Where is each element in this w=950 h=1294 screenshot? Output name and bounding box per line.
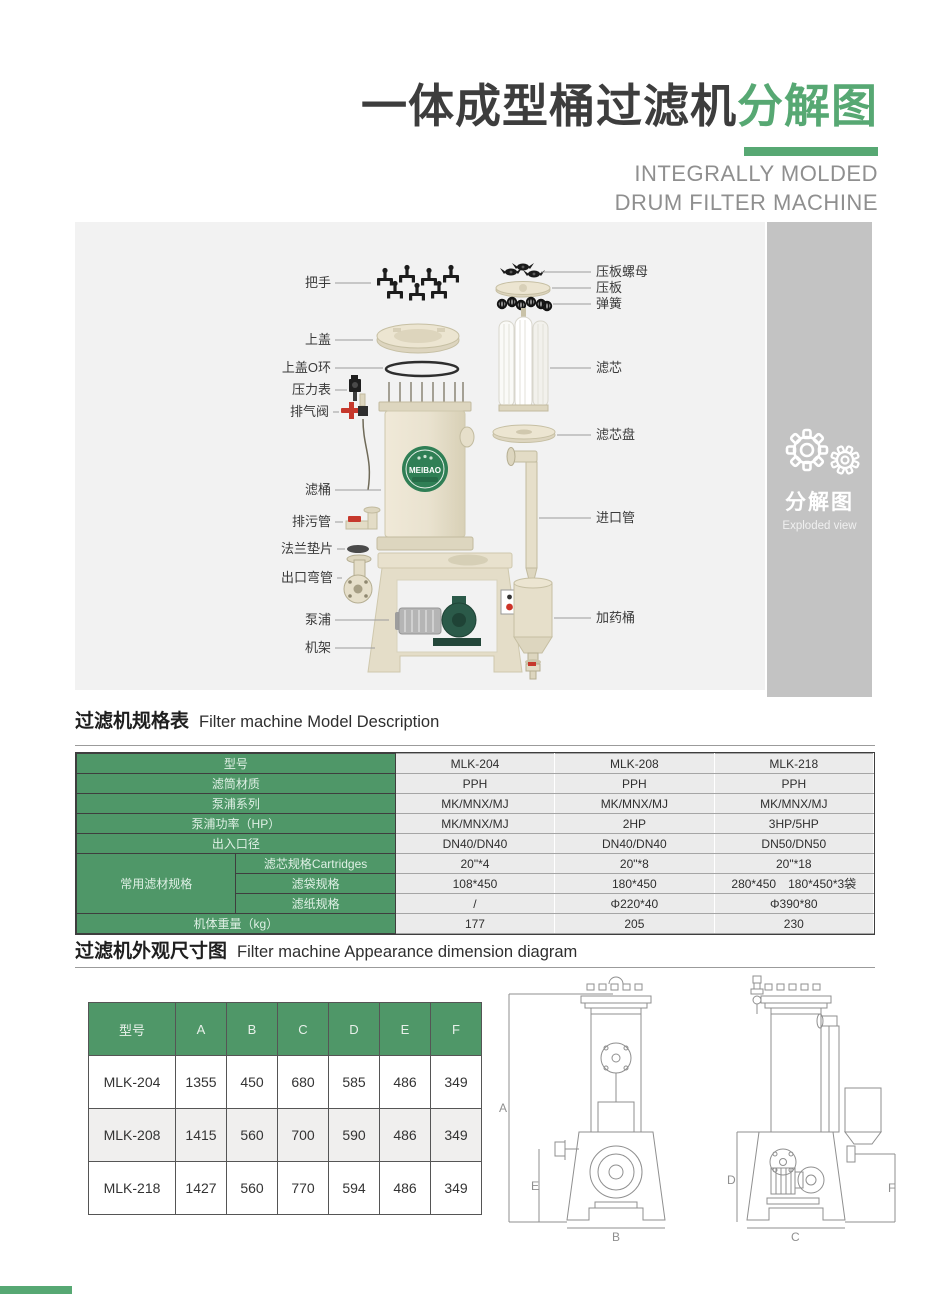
part-label: 上盖 <box>305 332 331 347</box>
dimension-table: 型号 A B C D E F MLK-204 1355 450 680 585 … <box>88 1002 482 1215</box>
part-label: 泵浦 <box>305 612 331 627</box>
dim-cell: 349 <box>431 1109 482 1162</box>
title-zh-accent: 分解图 <box>737 80 878 132</box>
spec-cell: DN40/DN40 <box>555 834 714 854</box>
dim-label-d: D <box>727 1173 736 1187</box>
part-labels-left: 把手 上盖 上盖O环 压力表 排气阀 滤桶 排污管 法兰垫片 出口弯管 泵浦 机… <box>281 275 333 655</box>
side-tab-title: 分解图 <box>785 486 854 516</box>
press-plate-part <box>496 282 550 298</box>
spec-cell: / <box>395 894 554 914</box>
exploded-diagram-panel: MEIBAO <box>75 222 765 690</box>
part-label: 弹簧 <box>596 296 622 311</box>
dimension-labels: A B C D E F <box>499 1101 895 1244</box>
spec-group-label: 常用滤材规格 <box>77 854 236 914</box>
side-view-drawing <box>737 976 895 1228</box>
part-label: 进口管 <box>596 510 635 525</box>
dim-cell: 590 <box>329 1109 380 1162</box>
footer-accent-bar <box>0 1286 72 1294</box>
dim-label-a: A <box>499 1101 507 1115</box>
top-cover-part <box>377 324 459 353</box>
title-underline <box>744 147 878 156</box>
table-row: 滤筒材质 PPH PPH PPH <box>77 774 874 794</box>
filter-drum-part: MEIBAO <box>377 382 474 550</box>
spec-cell: MK/MNX/MJ <box>714 794 873 814</box>
dim-label-c: C <box>791 1230 800 1244</box>
dim-label-b: B <box>612 1230 620 1244</box>
dim-header: F <box>431 1003 482 1056</box>
dim-header: A <box>176 1003 227 1056</box>
dim-cell: 450 <box>227 1056 278 1109</box>
part-label: 滤芯盘 <box>596 427 635 442</box>
table-row: 出入口径 DN40/DN40 DN40/DN40 DN50/DN50 <box>77 834 874 854</box>
dim-cell: 594 <box>329 1162 380 1215</box>
drum-logo-text: MEIBAO <box>409 466 441 475</box>
dim-cell: 349 <box>431 1162 482 1215</box>
spec-row-label: 滤袋规格 <box>236 874 395 894</box>
dim-section-heading: 过滤机外观尺寸图Filter machine Appearance dimens… <box>75 936 577 963</box>
dim-cell: 770 <box>278 1162 329 1215</box>
dim-heading-rule <box>75 967 875 968</box>
dim-cell: 680 <box>278 1056 329 1109</box>
spec-cell: PPH <box>714 774 873 794</box>
spec-cell: MK/MNX/MJ <box>395 794 554 814</box>
flange-gasket-part <box>347 545 369 553</box>
subtitle-line-1: INTEGRALLY MOLDED <box>615 159 878 188</box>
spec-row-label: 滤筒材质 <box>77 774 396 794</box>
part-label: 上盖O环 <box>282 360 331 375</box>
table-header-row: 型号 A B C D E F <box>89 1003 482 1056</box>
spec-cell: 280*450 180*450*3袋 <box>714 874 873 894</box>
dim-heading-en: Filter machine Appearance dimension diag… <box>237 943 577 961</box>
spec-cell: Φ390*80 <box>714 894 873 914</box>
spec-cell: 108*450 <box>395 874 554 894</box>
spec-row-label: 出入口径 <box>77 834 396 854</box>
exploded-diagram: MEIBAO <box>75 222 765 690</box>
subtitle-line-2: DRUM FILTER MACHINE <box>615 188 878 217</box>
dim-heading-zh: 过滤机外观尺寸图 <box>75 941 227 962</box>
spec-row-label: 滤纸规格 <box>236 894 395 914</box>
air-vent-valve-part <box>341 394 369 490</box>
spec-cell: MLK-204 <box>395 754 554 774</box>
drain-pipe-part <box>346 507 380 529</box>
catalog-page: 一体成型桶过滤机分解图 INTEGRALLY MOLDED DRUM FILTE… <box>0 0 950 1294</box>
part-label: 加药桶 <box>596 610 635 625</box>
part-label: 压力表 <box>292 382 331 397</box>
part-label: 把手 <box>305 275 331 290</box>
spec-cell: MK/MNX/MJ <box>555 794 714 814</box>
table-row: MLK-204 1355 450 680 585 486 349 <box>89 1056 482 1109</box>
spec-heading-zh: 过滤机规格表 <box>75 711 189 732</box>
outlet-elbow-part <box>344 555 372 603</box>
part-label: 滤芯 <box>596 360 622 375</box>
spec-cell: 20"*4 <box>395 854 554 874</box>
spec-cell: PPH <box>395 774 554 794</box>
table-row: 常用滤材规格 滤芯规格Cartridges 20"*4 20"*8 20"*18 <box>77 854 874 874</box>
table-row: 机体重量（kg） 177 205 230 <box>77 914 874 934</box>
exploded-view-tab: 分解图 Exploded view <box>767 222 872 697</box>
table-row: 型号 MLK-204 MLK-208 MLK-218 <box>77 754 874 774</box>
dim-cell: 486 <box>380 1162 431 1215</box>
press-plate-nuts-part <box>500 263 545 278</box>
dim-cell: MLK-208 <box>89 1109 176 1162</box>
handles-part <box>377 265 459 301</box>
dim-cell: 1355 <box>176 1056 227 1109</box>
part-label: 排污管 <box>292 514 331 529</box>
dim-cell: 1427 <box>176 1162 227 1215</box>
dim-header: B <box>227 1003 278 1056</box>
spec-cell: 205 <box>555 914 714 934</box>
spec-cell: 2HP <box>555 814 714 834</box>
part-label: 压板 <box>596 280 622 295</box>
pressure-gauge-part <box>349 375 361 401</box>
spec-cell: Φ220*40 <box>555 894 714 914</box>
spec-cell: 230 <box>714 914 873 934</box>
dim-cell: 486 <box>380 1109 431 1162</box>
spec-cell: MK/MNX/MJ <box>395 814 554 834</box>
part-label: 压板螺母 <box>596 264 648 279</box>
spec-cell: 177 <box>395 914 554 934</box>
part-labels-right: 压板螺母 压板 弹簧 滤芯 滤芯盘 进口管 加药桶 <box>596 264 648 625</box>
spec-cell: MLK-208 <box>555 754 714 774</box>
spec-heading-rule <box>75 745 875 746</box>
cover-o-ring-part <box>386 362 458 376</box>
spec-cell: 3HP/5HP <box>714 814 873 834</box>
spec-cell: 20"*8 <box>555 854 714 874</box>
dim-cell: 585 <box>329 1056 380 1109</box>
part-label: 排气阀 <box>290 404 329 419</box>
dim-cell: MLK-204 <box>89 1056 176 1109</box>
spec-table: 型号 MLK-204 MLK-208 MLK-218 滤筒材质 PPH PPH … <box>76 753 874 934</box>
table-row: 泵浦功率（HP） MK/MNX/MJ 2HP 3HP/5HP <box>77 814 874 834</box>
spec-cell: 180*450 <box>555 874 714 894</box>
dim-header: E <box>380 1003 431 1056</box>
spec-table-wrap: 型号 MLK-204 MLK-208 MLK-218 滤筒材质 PPH PPH … <box>75 752 875 935</box>
spec-row-label: 滤芯规格Cartridges <box>236 854 395 874</box>
title-zh-main: 一体成型桶过滤机 <box>361 80 737 132</box>
part-label: 机架 <box>305 640 331 655</box>
gears-icon <box>767 420 872 484</box>
dim-cell: 1415 <box>176 1109 227 1162</box>
table-row: MLK-218 1427 560 770 594 486 349 <box>89 1162 482 1215</box>
dim-cell: MLK-218 <box>89 1162 176 1215</box>
dim-label-f: F <box>888 1181 895 1195</box>
spec-cell: DN50/DN50 <box>714 834 873 854</box>
page-subtitle: INTEGRALLY MOLDED DRUM FILTER MACHINE <box>615 159 878 217</box>
part-label: 出口弯管 <box>281 570 333 585</box>
spec-row-label: 机体重量（kg） <box>77 914 396 934</box>
table-row: 泵浦系列 MK/MNX/MJ MK/MNX/MJ MK/MNX/MJ <box>77 794 874 814</box>
spec-section-heading: 过滤机规格表Filter machine Model Description <box>75 706 439 733</box>
dim-cell: 700 <box>278 1109 329 1162</box>
spec-cell: PPH <box>555 774 714 794</box>
cartridge-plate-part <box>493 425 555 443</box>
dim-header: D <box>329 1003 380 1056</box>
spec-row-label: 泵浦系列 <box>77 794 396 814</box>
spec-row-label: 泵浦功率（HP） <box>77 814 396 834</box>
dim-label-e: E <box>531 1179 539 1193</box>
filter-cartridges-part <box>499 308 548 411</box>
dim-cell: 349 <box>431 1056 482 1109</box>
part-label: 滤桶 <box>305 482 331 497</box>
dim-cell: 560 <box>227 1109 278 1162</box>
dimension-drawings: A B C D E F <box>495 972 935 1244</box>
dim-cell: 560 <box>227 1162 278 1215</box>
table-row: MLK-208 1415 560 700 590 486 349 <box>89 1109 482 1162</box>
page-title: 一体成型桶过滤机分解图 <box>361 80 878 133</box>
dim-header: C <box>278 1003 329 1056</box>
spec-cell: MLK-218 <box>714 754 873 774</box>
spec-cell: 20"*18 <box>714 854 873 874</box>
spec-row-label: 型号 <box>77 754 396 774</box>
side-tab-subtitle: Exploded view <box>782 520 856 532</box>
spec-cell: DN40/DN40 <box>395 834 554 854</box>
spec-heading-en: Filter machine Model Description <box>199 713 439 731</box>
dim-cell: 486 <box>380 1056 431 1109</box>
part-label: 法兰垫片 <box>281 541 333 556</box>
dim-header: 型号 <box>89 1003 176 1056</box>
